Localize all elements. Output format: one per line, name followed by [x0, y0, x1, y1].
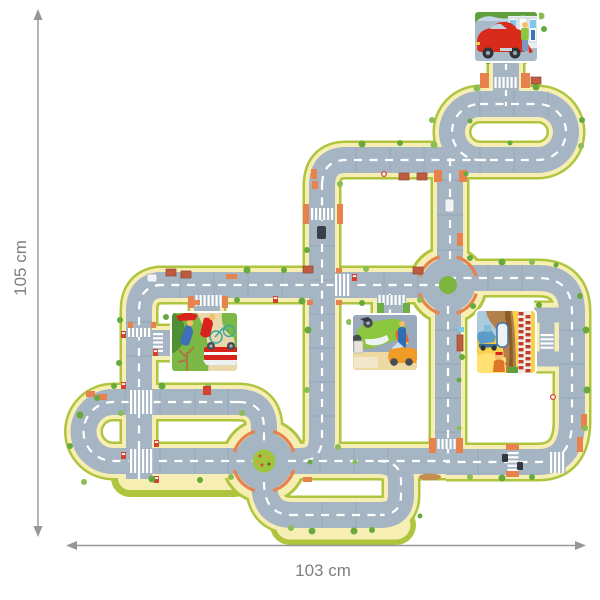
svg-text:103 cm: 103 cm	[295, 561, 351, 580]
svg-text:105 cm: 105 cm	[11, 240, 30, 296]
